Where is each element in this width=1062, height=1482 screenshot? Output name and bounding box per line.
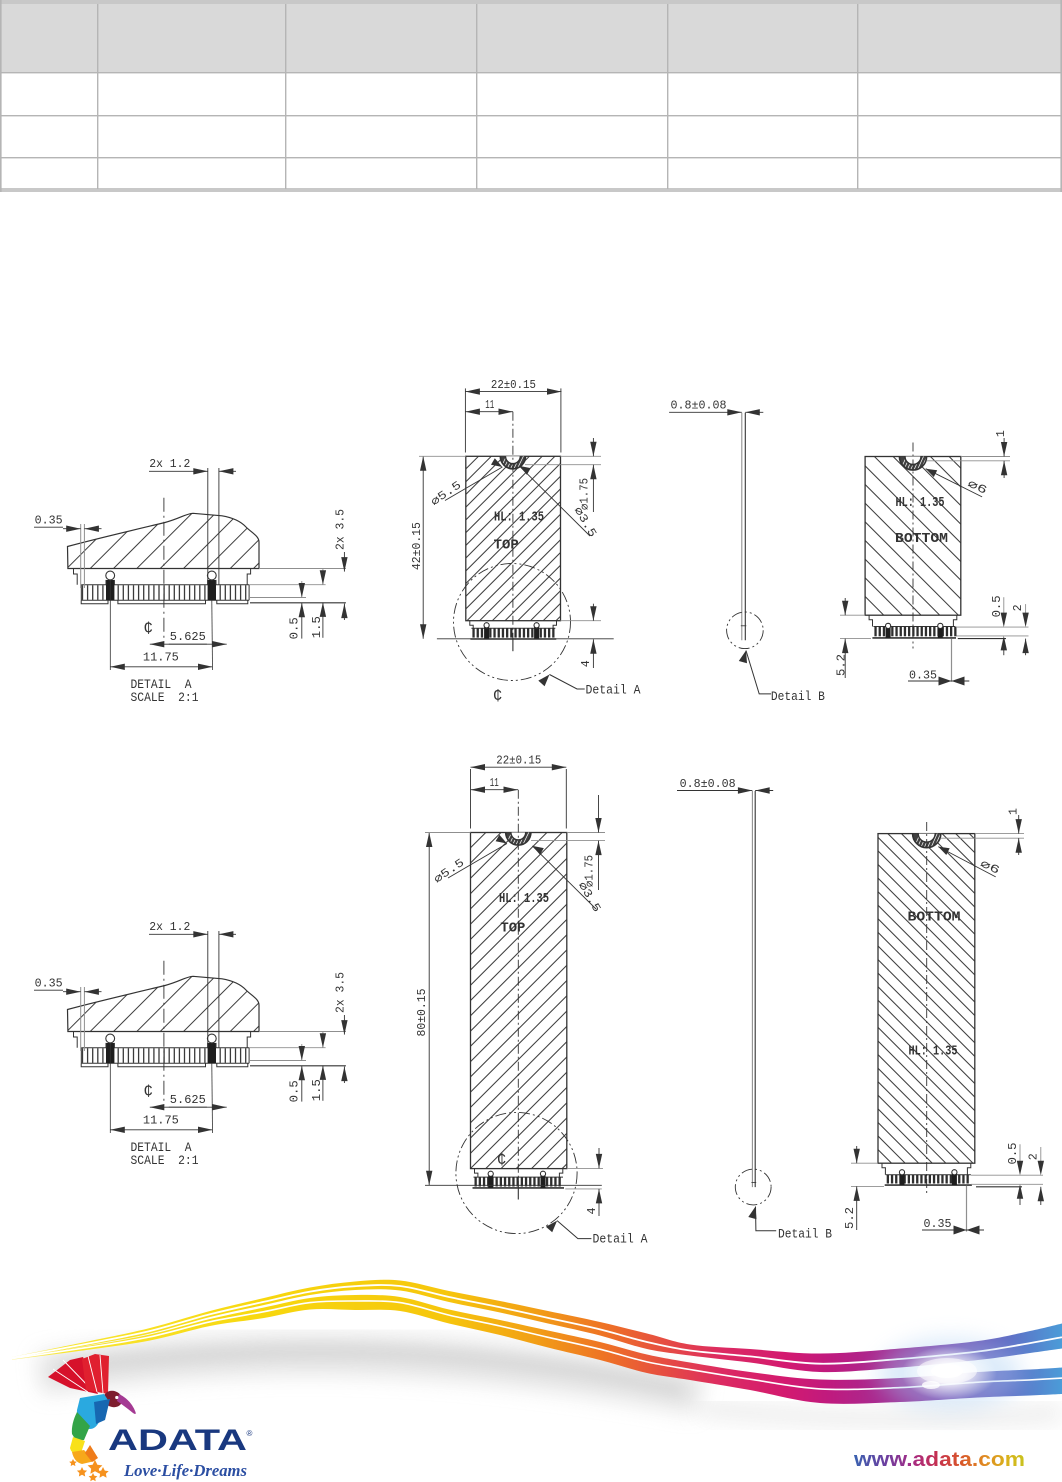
svg-text:11: 11 [490, 777, 499, 790]
svg-text:ADATA: ADATA [108, 1424, 247, 1457]
svg-text:www.adata.com: www.adata.com [853, 1448, 1025, 1471]
svg-text:₵: ₵ [493, 688, 502, 705]
svg-text:2: 2 [1028, 1153, 1041, 1160]
svg-text:0.8±0.08: 0.8±0.08 [671, 400, 727, 413]
svg-text:5.2: 5.2 [844, 1207, 857, 1229]
svg-text:1: 1 [995, 430, 1008, 437]
svg-text:0.8±0.08: 0.8±0.08 [680, 778, 736, 791]
svg-text:Detail B: Detail B [771, 690, 825, 704]
svg-text:HL: 1.35: HL: 1.35 [909, 1045, 958, 1060]
svg-text:HL: 1.35: HL: 1.35 [499, 892, 549, 907]
svg-text:80±0.15: 80±0.15 [416, 988, 429, 1036]
svg-text:⌀1.75: ⌀1.75 [584, 855, 597, 887]
svg-text:₵: ₵ [497, 1152, 506, 1169]
svg-text:5.625: 5.625 [170, 631, 206, 644]
svg-text:®: ® [247, 1429, 253, 1438]
svg-text:4: 4 [580, 660, 593, 667]
svg-text:4: 4 [586, 1207, 599, 1214]
svg-text:42±0.15: 42±0.15 [411, 522, 424, 570]
svg-text:22±0.15: 22±0.15 [491, 379, 536, 392]
svg-text:0.5: 0.5 [289, 617, 302, 639]
svg-text:⌀5.5: ⌀5.5 [429, 479, 465, 509]
svg-text:0.35: 0.35 [35, 515, 63, 528]
svg-text:BOTTOM: BOTTOM [908, 911, 961, 926]
svg-text:0.5: 0.5 [1007, 1142, 1020, 1164]
svg-text:HL: 1.35: HL: 1.35 [494, 511, 544, 526]
svg-text:₵: ₵ [144, 620, 153, 637]
svg-text:HL: 1.35: HL: 1.35 [896, 496, 945, 511]
svg-text:⌀6: ⌀6 [978, 857, 1002, 878]
svg-text:⌀5.5: ⌀5.5 [432, 856, 468, 886]
svg-text:DETAIL A: DETAIL A [131, 678, 192, 692]
svg-text:⌀6: ⌀6 [965, 477, 989, 498]
svg-text:Detail A: Detail A [593, 1232, 648, 1246]
svg-text:TOP: TOP [494, 538, 519, 553]
svg-text:Detail A: Detail A [586, 683, 641, 697]
svg-text:⌀1.75: ⌀1.75 [579, 478, 592, 510]
svg-text:0.5: 0.5 [991, 595, 1004, 617]
svg-text:TOP: TOP [500, 921, 525, 936]
svg-text:22±0.15: 22±0.15 [496, 755, 541, 768]
svg-text:Detail B: Detail B [778, 1228, 832, 1242]
svg-text:0.35: 0.35 [924, 1218, 952, 1231]
svg-text:2: 2 [1012, 604, 1025, 611]
svg-text:5.2: 5.2 [836, 654, 849, 676]
svg-text:BOTTOM: BOTTOM [895, 532, 948, 547]
svg-text:Love·Life·Dreams: Love·Life·Dreams [123, 1461, 247, 1480]
svg-text:SCALE 2:1: SCALE 2:1 [131, 691, 199, 705]
svg-text:11.75: 11.75 [143, 652, 179, 665]
svg-text:1.5: 1.5 [311, 616, 324, 638]
svg-text:11: 11 [485, 399, 494, 412]
svg-text:2x 3.5: 2x 3.5 [334, 509, 347, 550]
svg-text:2x 1.2: 2x 1.2 [149, 458, 190, 471]
svg-text:1: 1 [1008, 808, 1021, 815]
